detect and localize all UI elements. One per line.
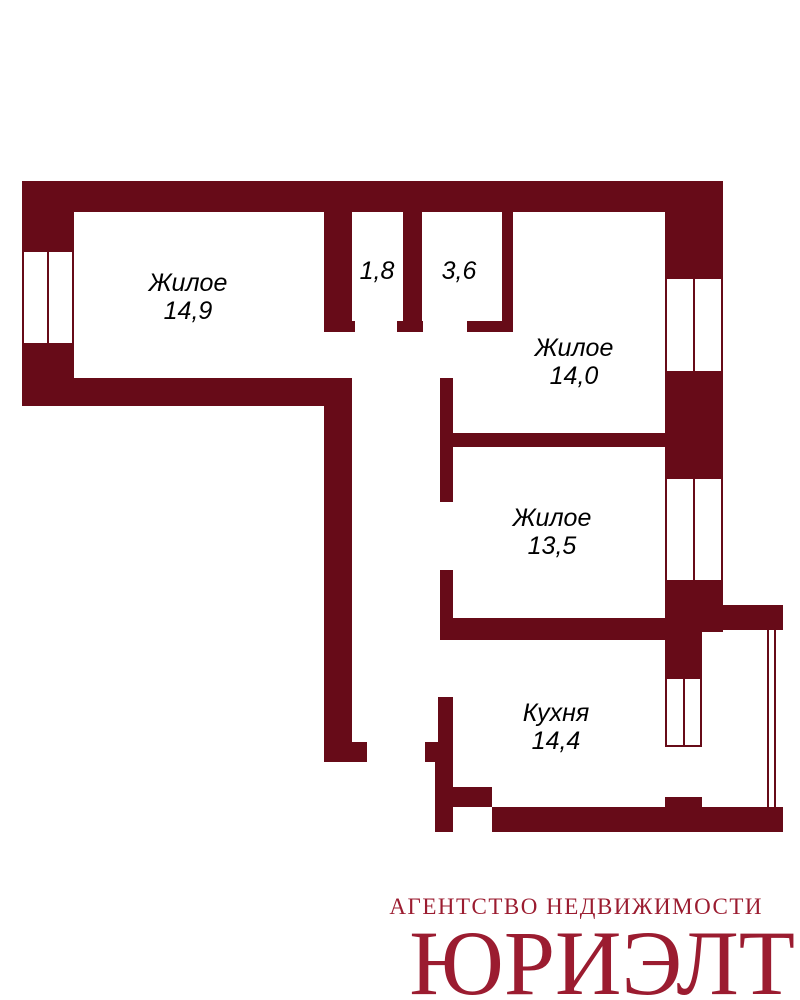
rooms-left-wall-upper	[440, 378, 453, 502]
room1-window-divider	[47, 252, 49, 343]
living-room-1-label: Жилое14,9	[149, 269, 228, 325]
living-room-2-label: Жилое14,0	[535, 334, 614, 390]
kitchen-label-line: 14,4	[523, 727, 590, 755]
hall-left-wall	[324, 212, 352, 321]
bathroom-area-label-line: 3,6	[442, 257, 477, 285]
kitchen-bottom-wall	[492, 807, 783, 832]
living-room-2-label-line: Жилое	[535, 334, 614, 362]
right-outer-wall-middle	[665, 373, 723, 477]
corridor-left-wall-foot	[324, 742, 367, 762]
room1-bottom-outer-wall	[22, 378, 352, 406]
kitchen-right-bump	[665, 797, 702, 807]
balcony-top-wall	[723, 605, 783, 630]
bathroom-area-label: 3,6	[442, 257, 477, 285]
balcony-railing	[767, 630, 776, 807]
living-room-3-label-line: Жилое	[513, 504, 592, 532]
kitchen-window-divider	[683, 679, 685, 745]
kitchen-right-wall	[665, 632, 702, 677]
agency-logo: АГЕНТСТВО НЕДВИЖИМОСТИ ЮРИЭЛТ	[389, 893, 795, 1000]
floor-plan-page: Жилое14,91,83,6Жилое14,0Жилое13,5Кухня14…	[0, 0, 800, 1000]
living-room-1-label-line: 14,9	[149, 297, 228, 325]
corridor-left-wall	[324, 406, 352, 742]
living-room-1-label-line: Жилое	[149, 269, 228, 297]
room2-window-divider	[693, 279, 695, 371]
top-outer-wall	[22, 181, 723, 212]
rooms-left-wall-lower	[440, 570, 453, 640]
left-outer-wall-upper	[22, 212, 74, 250]
hall-bath-divider-foot	[397, 321, 423, 332]
floor-plan: Жилое14,91,83,6Жилое14,0Жилое13,5Кухня14…	[0, 0, 800, 1000]
room3-kitchen-divider-wall	[453, 618, 665, 640]
kitchen-left-wall	[438, 697, 453, 762]
kitchen-left-bottom-wall	[435, 762, 453, 832]
room3-window-divider	[693, 479, 695, 580]
kitchen-window	[665, 677, 702, 747]
hallway-area-label: 1,8	[360, 257, 395, 285]
kitchen-bottom-step	[453, 787, 492, 807]
kitchen-label: Кухня14,4	[523, 699, 590, 755]
kitchen-label-line: Кухня	[523, 699, 590, 727]
room2-window	[665, 277, 723, 373]
bath-right-wall-foot	[467, 321, 513, 332]
hall-bath-divider-wall	[403, 212, 422, 321]
living-room-2-label-line: 14,0	[535, 362, 614, 390]
hall-left-wall-foot	[324, 321, 355, 332]
kitchen-door-foot	[425, 742, 438, 762]
living-room-3-label: Жилое13,5	[513, 504, 592, 560]
living-room-3-label-line: 13,5	[513, 532, 592, 560]
hallway-area-label-line: 1,8	[360, 257, 395, 285]
right-outer-wall-lower	[665, 582, 723, 632]
bath-right-wall	[502, 212, 513, 321]
room2-room3-divider-wall	[453, 433, 665, 447]
room3-window	[665, 477, 723, 582]
right-outer-wall-upper	[665, 212, 723, 277]
room1-window	[22, 250, 74, 345]
agency-brand-name: ЮРИЭЛТ	[389, 917, 795, 1000]
